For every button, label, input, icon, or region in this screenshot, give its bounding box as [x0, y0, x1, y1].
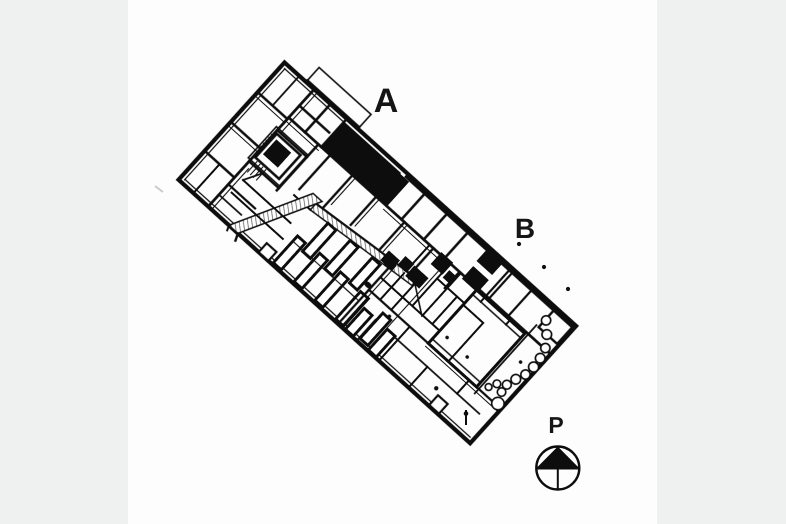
svg-text:B: B	[515, 213, 535, 244]
svg-text:P: P	[548, 412, 563, 438]
svg-text:A: A	[374, 82, 399, 120]
